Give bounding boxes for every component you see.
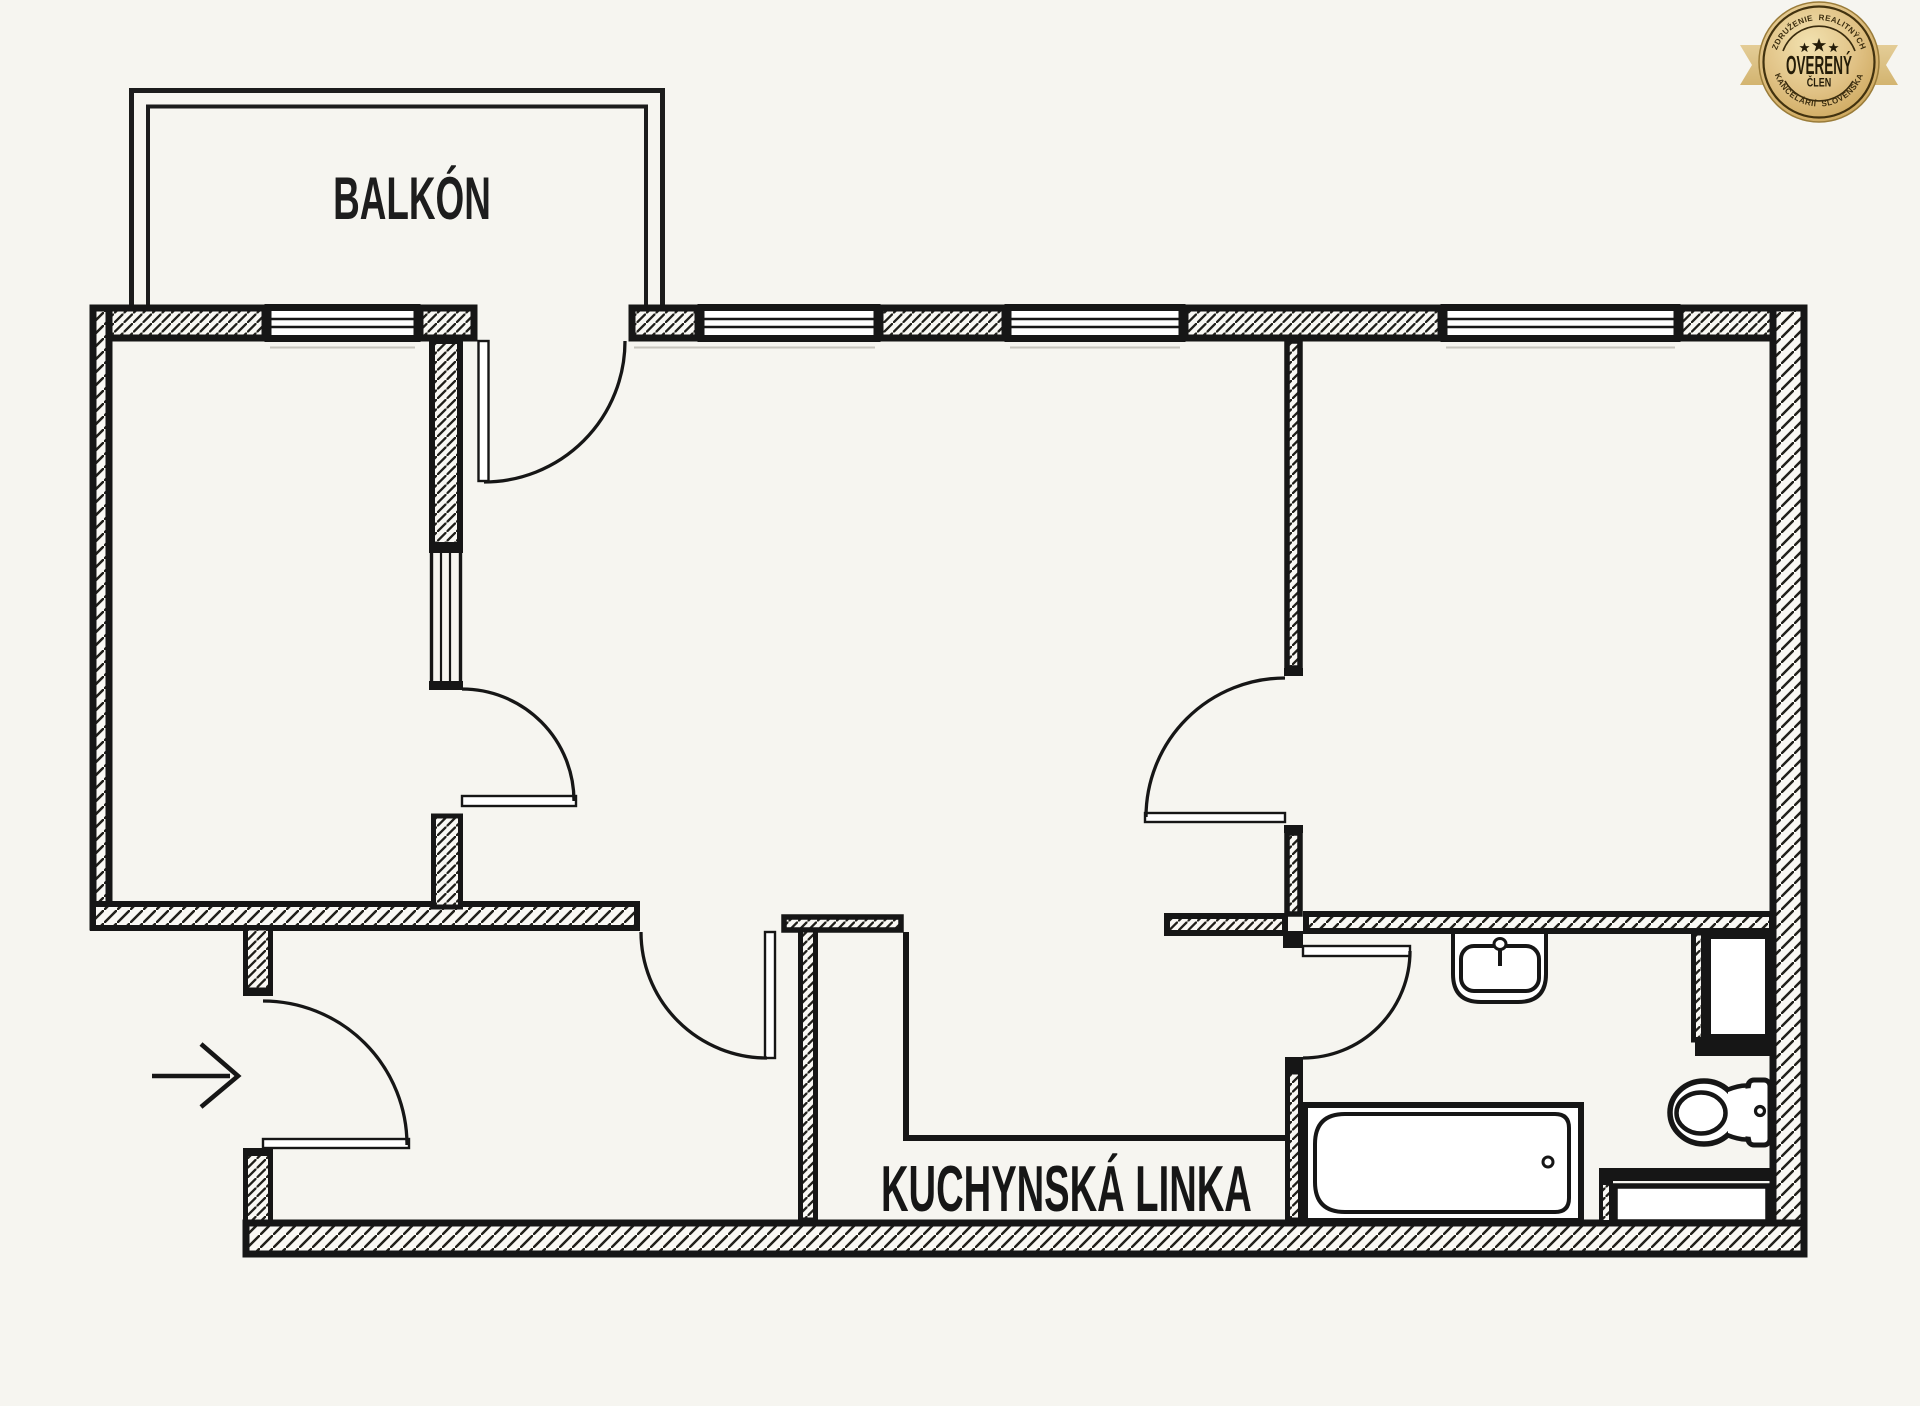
svg-text:ČLEN: ČLEN <box>1807 75 1831 89</box>
svg-text:OVERENÝ: OVERENÝ <box>1786 50 1852 80</box>
svg-text:BALKÓN: BALKÓN <box>333 165 491 232</box>
svg-text:KUCHYNSKÁ LINKA: KUCHYNSKÁ LINKA <box>881 1152 1252 1225</box>
